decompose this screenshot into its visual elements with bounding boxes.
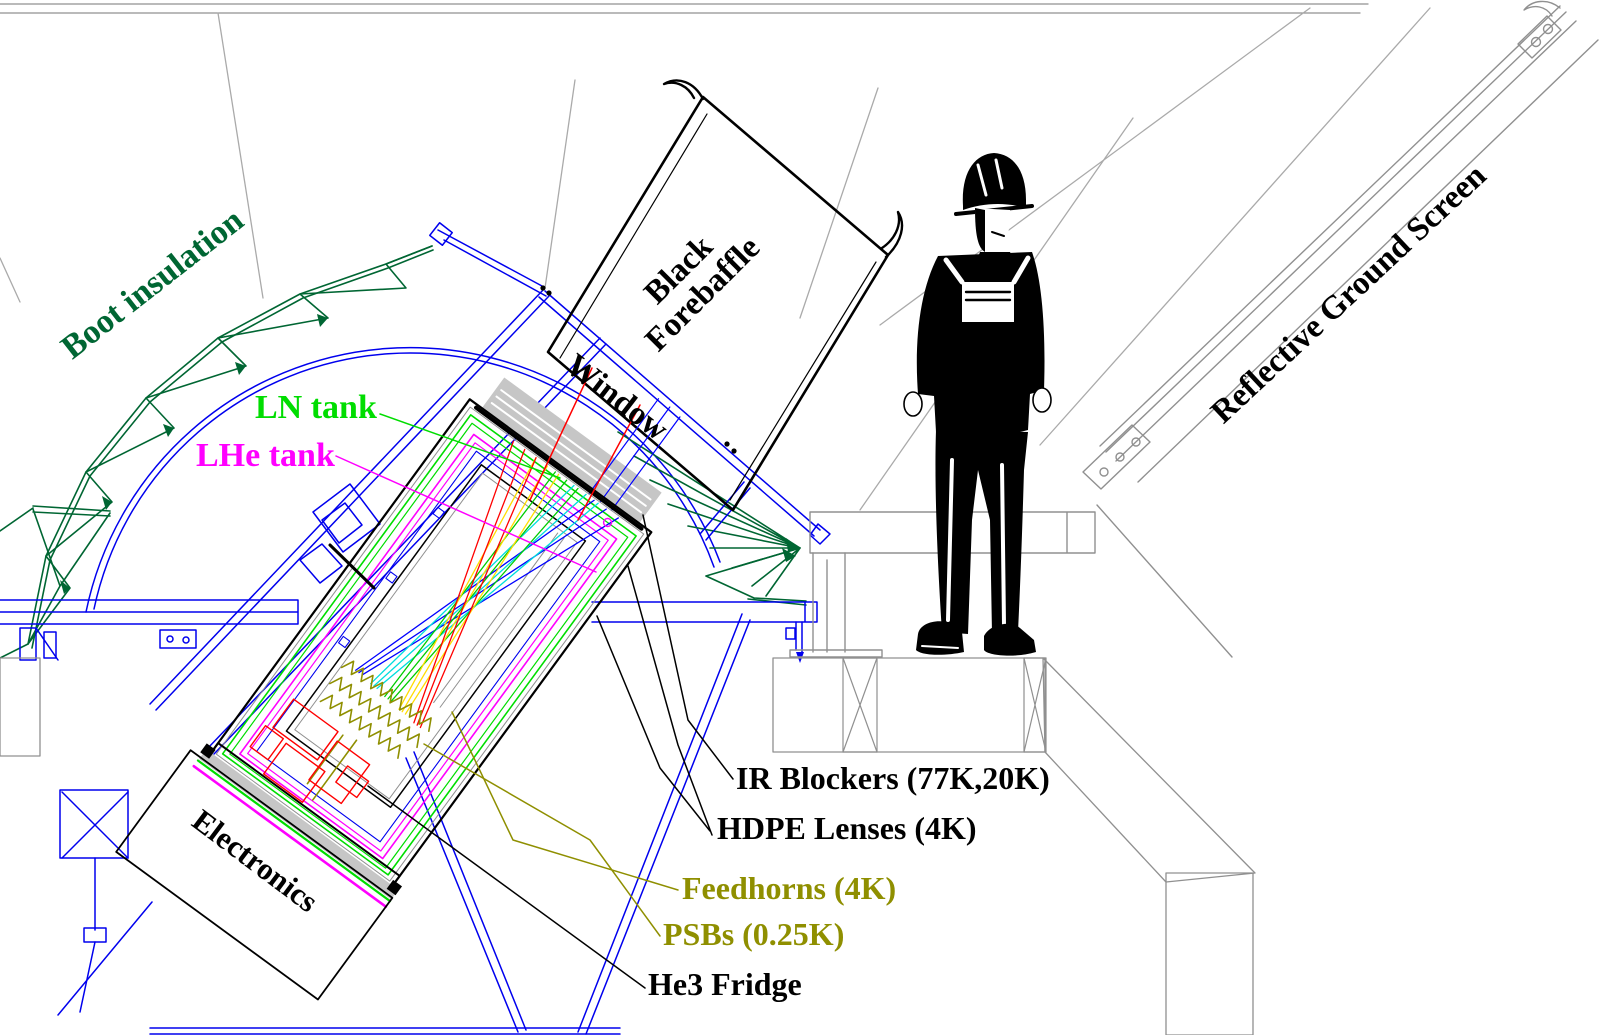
overalls-bib — [962, 282, 1014, 322]
hdpe-leaders — [597, 566, 712, 835]
lhe-tank-outline — [240, 434, 617, 858]
platform-column — [1166, 873, 1253, 1035]
boot-right — [984, 624, 1036, 656]
label-ln-tank: LN tank — [255, 390, 377, 425]
hard-hat — [963, 153, 1026, 210]
person-figure — [904, 153, 1051, 656]
label-hdpe-lenses: HDPE Lenses (4K) — [717, 812, 977, 845]
deck-column — [813, 553, 845, 652]
ground-screen-structure — [1083, 1, 1598, 657]
ir-blockers-leader — [643, 515, 733, 779]
psbs-leader — [424, 744, 660, 936]
label-feedhorns: Feedhorns (4K) — [682, 872, 896, 905]
frame-leg-left — [406, 752, 526, 1032]
boot-insulation-right-fan — [618, 432, 806, 605]
label-ir-blockers: IR Blockers (77K,20K) — [736, 762, 1050, 795]
label-he3-fridge: He3 Fridge — [648, 968, 802, 1001]
trunnion-block — [313, 484, 380, 552]
platform-ramp — [1043, 658, 1255, 882]
screen-support-brace — [1097, 505, 1232, 657]
label-lhe-tank: LHe tank — [196, 438, 335, 473]
label-psbs: PSBs (0.25K) — [663, 918, 844, 951]
diagram-canvas: Boot insulation LN tank LHe tank Black F… — [0, 0, 1600, 1035]
frame-bottom-beam — [150, 1028, 620, 1034]
azimuth-beam-right — [592, 602, 817, 622]
he3-leader — [368, 786, 645, 988]
screen-end-curl — [1524, 1, 1560, 16]
forebaffle-flare-right — [882, 212, 902, 257]
forebaffle-flare-left — [664, 80, 703, 99]
platform-left-block — [0, 658, 40, 756]
lhe-tank-leader — [336, 456, 596, 572]
platform — [0, 658, 1255, 1035]
